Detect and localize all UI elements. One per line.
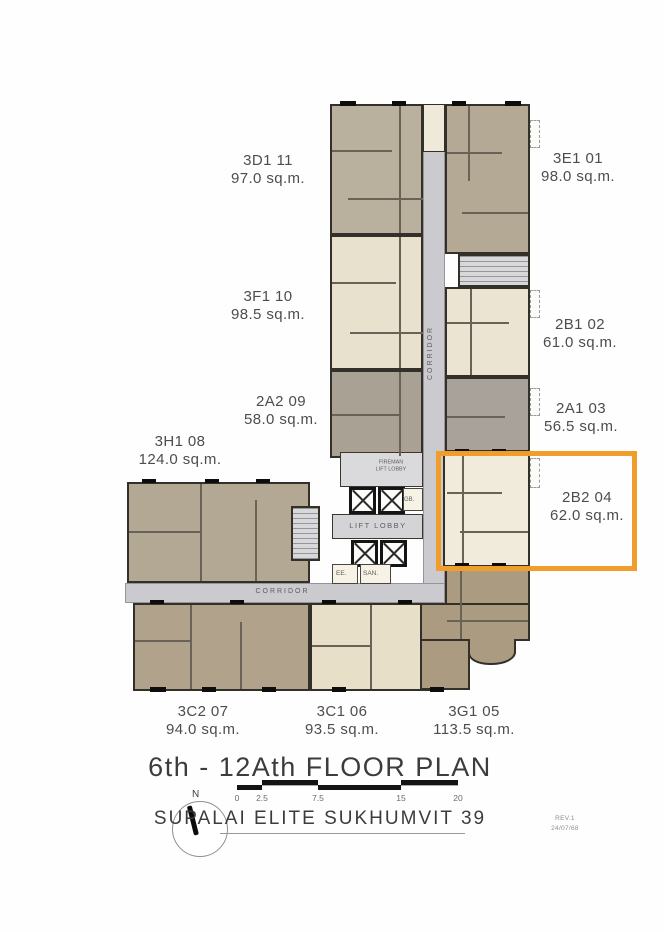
wall-segment bbox=[230, 600, 244, 604]
room-partition-line bbox=[447, 416, 505, 418]
scale-bar-segment bbox=[262, 780, 318, 785]
unit-area: 58.0 sq.m. bbox=[220, 411, 342, 429]
unit-area: 94.0 sq.m. bbox=[142, 721, 264, 739]
wall-segment bbox=[452, 101, 466, 106]
unit-label-2a1-03: 2A1 03 56.5 sq.m. bbox=[520, 400, 642, 436]
balcony-ledge bbox=[530, 290, 540, 318]
unit-area: 113.5 sq.m. bbox=[413, 721, 535, 739]
corridor-horizontal-label: CORRIDOR bbox=[235, 588, 330, 595]
lift-shaft-icon bbox=[380, 540, 407, 567]
wall-segment bbox=[505, 101, 521, 106]
room-partition-line bbox=[255, 500, 257, 581]
ee-label: EE. bbox=[336, 570, 346, 577]
unit-label-3d1-11: 3D1 11 97.0 sq.m. bbox=[207, 152, 329, 188]
gb-label: GB. bbox=[404, 497, 414, 503]
unit-3g1-05-curve-shape bbox=[468, 639, 516, 665]
scale-tick-0: 0 bbox=[225, 793, 249, 803]
lift-shaft-icon bbox=[349, 487, 376, 514]
floor-plan-title: 6th - 12Ath FLOOR PLAN bbox=[120, 752, 520, 783]
balcony-ledge bbox=[530, 120, 540, 148]
revision-date: 24/07/68 bbox=[551, 825, 579, 832]
wall-segment bbox=[150, 687, 166, 692]
highlighted-unit-2b2-04-box[interactable] bbox=[436, 451, 637, 571]
unit-label-3g1-05: 3G1 05 113.5 sq.m. bbox=[413, 703, 535, 739]
unit-code: 3H1 08 bbox=[119, 433, 241, 451]
unit-3d1-11-shape[interactable] bbox=[330, 104, 423, 235]
room-partition-line bbox=[332, 414, 400, 416]
unit-code: 2A2 09 bbox=[220, 393, 342, 411]
san-label: SAN. bbox=[363, 570, 378, 577]
unit-label-3c2-07: 3C2 07 94.0 sq.m. bbox=[142, 703, 264, 739]
unit-3g1-05-lower-shape[interactable] bbox=[420, 639, 470, 690]
unit-label-3c1-06: 3C1 06 93.5 sq.m. bbox=[281, 703, 403, 739]
room-partition-line bbox=[312, 645, 370, 647]
unit-label-2a2-09: 2A2 09 58.0 sq.m. bbox=[220, 393, 342, 429]
lift-shaft-icon bbox=[351, 540, 378, 567]
unit-3f1-10-shape[interactable] bbox=[330, 235, 423, 370]
project-name-underline bbox=[220, 833, 465, 834]
fireman-lift-lobby-label: FIREMAN LIFT LOBBY bbox=[365, 460, 417, 474]
unit-label-3h1-08: 3H1 08 124.0 sq.m. bbox=[119, 433, 241, 469]
wall-segment bbox=[430, 687, 444, 692]
unit-3c2-07-shape[interactable] bbox=[133, 603, 310, 691]
unit-code: 3E1 01 bbox=[517, 150, 639, 168]
room-partition-line bbox=[348, 198, 423, 200]
unit-code: 2A1 03 bbox=[520, 400, 642, 418]
unit-2a1-03-shape[interactable] bbox=[445, 377, 530, 452]
compass-north-label: N bbox=[192, 789, 199, 800]
room-partition-line bbox=[447, 152, 502, 154]
room-partition-line bbox=[447, 620, 528, 622]
room-partition-line bbox=[129, 531, 201, 533]
scale-tick-2-5: 2.5 bbox=[250, 793, 274, 803]
room-partition-line bbox=[399, 237, 401, 368]
wall-segment bbox=[340, 101, 356, 106]
unit-label-3f1-10: 3F1 10 98.5 sq.m. bbox=[207, 288, 329, 324]
fireman-label-line2: LIFT LOBBY bbox=[376, 467, 407, 472]
scale-tick-15: 15 bbox=[389, 793, 413, 803]
wall-segment bbox=[262, 687, 276, 692]
unit-code: 3F1 10 bbox=[207, 288, 329, 306]
unit-code: 3G1 05 bbox=[413, 703, 535, 721]
room-partition-line bbox=[399, 372, 401, 456]
room-partition-line bbox=[240, 622, 242, 689]
unit-area: 97.0 sq.m. bbox=[207, 170, 329, 188]
room-partition-line bbox=[399, 106, 401, 233]
wall-segment bbox=[398, 600, 412, 604]
revision-note: REV.1 24/07/68 bbox=[535, 814, 595, 834]
scale-tick-20: 20 bbox=[446, 793, 470, 803]
wall-segment bbox=[332, 687, 346, 692]
wall-segment bbox=[142, 479, 156, 483]
unit-area: 93.5 sq.m. bbox=[281, 721, 403, 739]
wall-segment bbox=[322, 600, 336, 604]
unit-code: 3C2 07 bbox=[142, 703, 264, 721]
wall-segment bbox=[256, 479, 270, 483]
unit-code: 3D1 11 bbox=[207, 152, 329, 170]
unit-3g1-05-shape[interactable] bbox=[420, 603, 530, 641]
room-partition-line bbox=[350, 332, 423, 334]
scale-tick-7-5: 7.5 bbox=[306, 793, 330, 803]
floor-plan-sheet: FIREMAN LIFT LOBBY LIFT LOBBY GB. EE. SA… bbox=[0, 0, 664, 932]
unit-label-3e1-01: 3E1 01 98.0 sq.m. bbox=[517, 150, 639, 186]
unit-3g1-05-upper-shape[interactable] bbox=[445, 567, 530, 605]
room-partition-line bbox=[135, 640, 190, 642]
unit-area: 98.5 sq.m. bbox=[207, 306, 329, 324]
unit-code: 2B1 02 bbox=[519, 316, 641, 334]
project-name: SUPALAI ELITE SUKHUMVIT 39 bbox=[130, 808, 510, 830]
room-partition-line bbox=[460, 569, 462, 639]
lift-shaft-icon bbox=[378, 487, 405, 514]
unit-area: 124.0 sq.m. bbox=[119, 451, 241, 469]
room-partition-line bbox=[447, 322, 509, 324]
unit-area: 98.0 sq.m. bbox=[517, 168, 639, 186]
scale-bar-segment bbox=[237, 785, 262, 790]
unit-2b1-02-shape[interactable] bbox=[445, 287, 530, 377]
room-partition-line bbox=[462, 212, 528, 214]
wall-segment bbox=[150, 600, 164, 604]
wall-segment bbox=[205, 479, 219, 483]
room-partition-line bbox=[332, 150, 392, 152]
room-partition-line bbox=[468, 106, 470, 181]
corridor-vertical-label: CORRIDOR bbox=[427, 300, 434, 380]
unit-area: 56.5 sq.m. bbox=[520, 418, 642, 436]
unit-code: 3C1 06 bbox=[281, 703, 403, 721]
unit-area: 61.0 sq.m. bbox=[519, 334, 641, 352]
stairs-top-shape bbox=[458, 254, 530, 287]
wall-segment bbox=[392, 101, 406, 106]
wall-segment bbox=[202, 687, 216, 692]
lift-lobby-label: LIFT LOBBY bbox=[338, 521, 418, 530]
scale-bar-segment bbox=[318, 785, 401, 790]
room-partition-line bbox=[332, 282, 396, 284]
scale-bar-segment bbox=[401, 780, 458, 785]
stairs-left-shape bbox=[291, 506, 320, 561]
room-partition-line bbox=[470, 289, 472, 375]
room-partition-line bbox=[370, 605, 372, 689]
unit-label-2b1-02: 2B1 02 61.0 sq.m. bbox=[519, 316, 641, 352]
fireman-label-line1: FIREMAN bbox=[379, 460, 403, 465]
revision-number: REV.1 bbox=[555, 815, 575, 822]
room-partition-line bbox=[190, 605, 192, 689]
service-room-shape bbox=[423, 104, 445, 152]
